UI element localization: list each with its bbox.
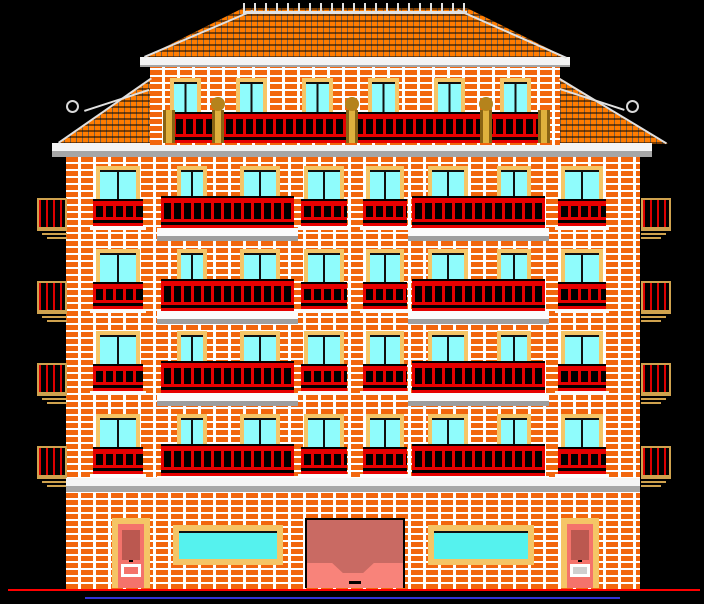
side-balcony-slab-line xyxy=(641,312,671,314)
french-balcony-railing xyxy=(301,447,347,474)
main-cornice xyxy=(52,143,652,157)
side-balcony-railing xyxy=(641,281,671,312)
garage-handle xyxy=(349,581,361,584)
side-balcony-slab-line xyxy=(47,237,67,239)
balcony-sill xyxy=(298,391,350,395)
balcony-sill xyxy=(90,391,146,395)
balcony-railing xyxy=(161,361,294,393)
balcony-post xyxy=(480,110,492,143)
balcony-post xyxy=(163,110,175,143)
side-balcony-slab-line xyxy=(37,394,67,396)
balcony-sill xyxy=(90,309,146,313)
ground-floor-band xyxy=(66,478,640,492)
side-balcony-slab-line xyxy=(641,229,671,231)
side-balcony-slab-line xyxy=(641,320,661,322)
balcony-sill xyxy=(360,309,410,313)
roof-ornament-circle xyxy=(626,100,639,113)
french-balcony-railing xyxy=(363,282,407,309)
french-balcony-railing xyxy=(93,364,143,391)
french-balcony-railing xyxy=(301,282,347,309)
post-finial xyxy=(479,97,493,111)
balcony-slab xyxy=(408,393,549,406)
balcony-railing xyxy=(412,279,545,311)
side-balcony-slab-line xyxy=(37,312,67,314)
shop-window-glass xyxy=(179,531,277,559)
side-balcony-slab-line xyxy=(641,477,671,479)
side-balcony-railing xyxy=(37,363,67,394)
balcony-sill xyxy=(555,391,609,395)
side-balcony-railing xyxy=(37,281,67,312)
balcony-railing xyxy=(161,444,294,476)
balcony-post xyxy=(538,110,550,143)
balcony-sill xyxy=(555,309,609,313)
balcony-sill xyxy=(298,226,350,230)
door-lower-panel xyxy=(121,564,141,577)
french-balcony-railing xyxy=(558,364,606,391)
balcony-post xyxy=(346,110,358,143)
ground-line xyxy=(8,589,700,591)
post-finial xyxy=(345,97,359,111)
upper-cornice xyxy=(140,57,570,67)
side-balcony-railing xyxy=(37,446,67,477)
side-balcony-slab-line xyxy=(42,233,67,235)
balcony-post xyxy=(212,110,224,143)
french-balcony-railing xyxy=(558,282,606,309)
side-balcony-slab-line xyxy=(641,394,671,396)
french-balcony-railing xyxy=(363,364,407,391)
side-balcony-slab-line xyxy=(641,233,666,235)
side-balcony-slab-line xyxy=(42,398,67,400)
side-balcony-slab-line xyxy=(47,402,67,404)
door-panel xyxy=(571,530,589,560)
shop-window-glass xyxy=(434,531,528,559)
french-balcony-railing xyxy=(93,199,143,226)
balcony-railing xyxy=(412,444,545,476)
balcony-railing xyxy=(161,196,294,228)
hip-roof xyxy=(143,8,567,58)
side-balcony-slab-line xyxy=(641,398,666,400)
side-balcony-slab-line xyxy=(42,316,67,318)
french-balcony-railing xyxy=(363,447,407,474)
side-balcony-railing xyxy=(641,198,671,229)
side-balcony-slab-line xyxy=(47,485,67,487)
side-balcony-slab-line xyxy=(641,485,661,487)
french-balcony-railing xyxy=(93,282,143,309)
side-balcony-slab-line xyxy=(641,316,666,318)
french-balcony-railing xyxy=(363,199,407,226)
french-balcony-railing xyxy=(93,447,143,474)
balcony-railing xyxy=(412,361,545,393)
side-balcony-railing xyxy=(641,363,671,394)
balcony-slab xyxy=(157,393,298,406)
side-balcony-slab-line xyxy=(37,229,67,231)
side-balcony-slab-line xyxy=(42,481,67,483)
roof-ridge-cresting xyxy=(243,3,467,14)
balcony-slab xyxy=(408,228,549,241)
balcony-slab xyxy=(157,311,298,324)
side-balcony-slab-line xyxy=(37,477,67,479)
french-balcony-railing xyxy=(301,364,347,391)
side-balcony-railing xyxy=(641,446,671,477)
post-finial xyxy=(211,97,225,111)
roof-ornament-circle xyxy=(66,100,79,113)
base-line xyxy=(85,597,620,599)
french-balcony-railing xyxy=(558,447,606,474)
door-handle xyxy=(578,560,582,562)
side-balcony-slab-line xyxy=(641,481,666,483)
door-lower-panel xyxy=(570,564,590,577)
french-balcony-railing xyxy=(301,199,347,226)
building-elevation-canvas xyxy=(0,0,704,604)
balcony-sill xyxy=(360,391,410,395)
balcony-sill xyxy=(90,226,146,230)
side-balcony-slab-line xyxy=(641,402,661,404)
side-balcony-slab-line xyxy=(641,237,661,239)
balcony-slab xyxy=(408,311,549,324)
side-balcony-slab-line xyxy=(47,320,67,322)
balcony-slab xyxy=(157,228,298,241)
balcony-railing xyxy=(161,279,294,311)
french-balcony-railing xyxy=(558,199,606,226)
balcony-sill xyxy=(555,226,609,230)
door-handle xyxy=(129,560,133,562)
balcony-sill xyxy=(298,309,350,313)
door-panel xyxy=(122,530,140,560)
side-balcony-railing xyxy=(37,198,67,229)
balcony-railing xyxy=(412,196,545,228)
balcony-sill xyxy=(360,226,410,230)
